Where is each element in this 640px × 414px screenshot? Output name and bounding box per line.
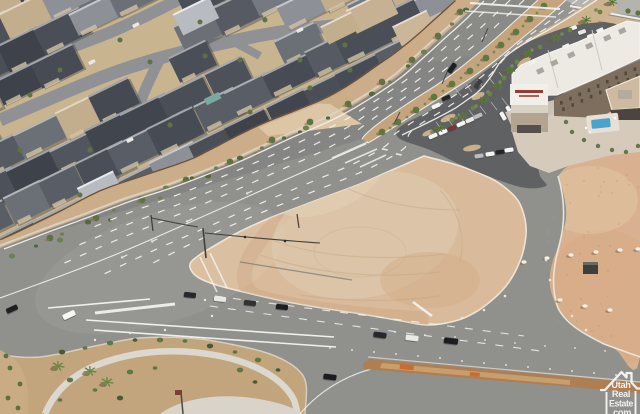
svg-text:Real: Real: [612, 389, 630, 399]
svg-text:.com: .com: [611, 408, 631, 414]
